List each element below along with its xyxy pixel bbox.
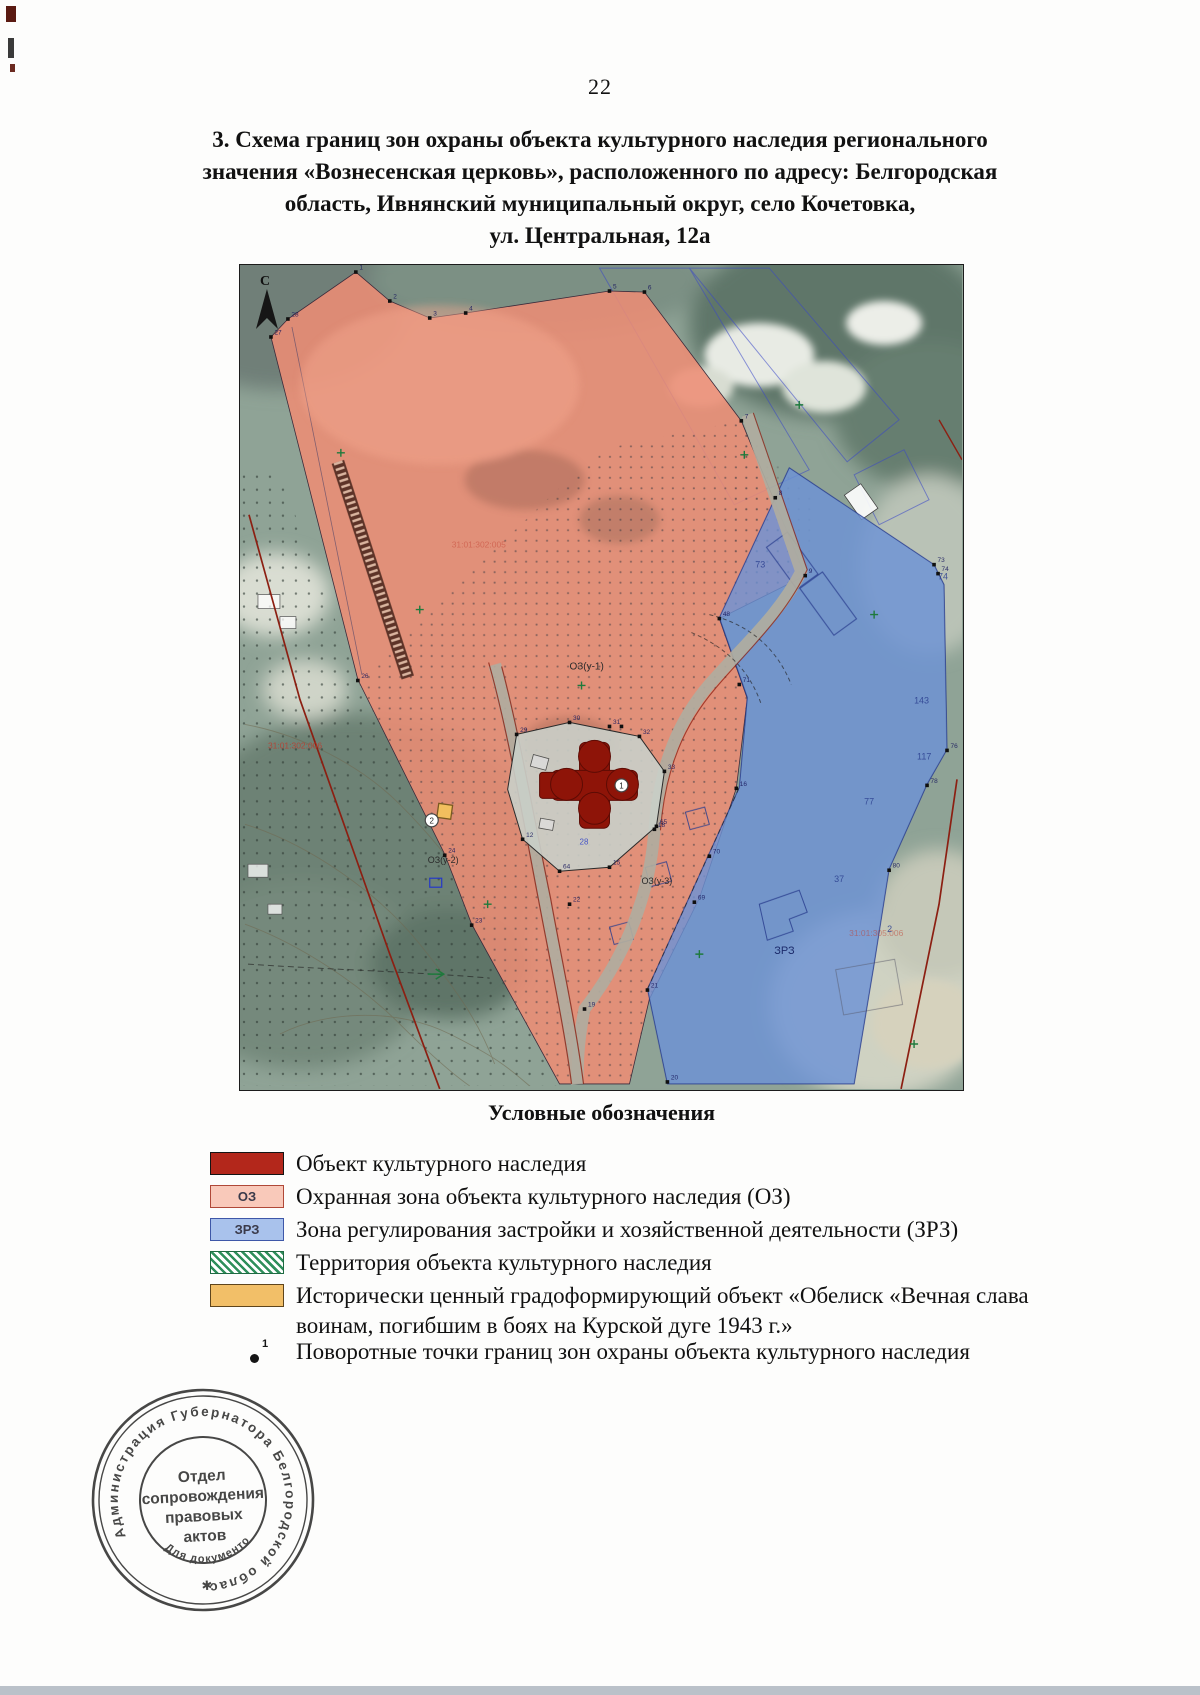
- svg-text:78: 78: [931, 778, 939, 785]
- svg-text:32: 32: [643, 729, 651, 736]
- svg-text:31:01:305:006: 31:01:305:006: [849, 928, 903, 938]
- legend-heading: Условные обозначения: [240, 1100, 963, 1126]
- svg-text:71: 71: [743, 677, 751, 684]
- svg-text:28: 28: [291, 311, 299, 318]
- legend-swatch-territory: [210, 1251, 284, 1274]
- svg-text:18: 18: [658, 822, 666, 829]
- svg-text:15: 15: [613, 860, 621, 867]
- svg-text:37: 37: [834, 874, 844, 884]
- document-page: 22 3. Схема границ зон охраны объекта ку…: [0, 0, 1200, 1695]
- point-number: 1: [262, 1338, 268, 1350]
- legend-label: Исторически ценный градоформирующий объе…: [296, 1281, 1066, 1341]
- legend-swatch-tag: ЗРЗ: [235, 1222, 260, 1237]
- obelisk-marker: [437, 803, 453, 819]
- svg-text:64: 64: [563, 864, 571, 871]
- legend-row-territory: Территория объекта культурного наследия: [210, 1248, 712, 1278]
- svg-text:117: 117: [917, 751, 931, 761]
- legend-swatch-tag: ОЗ: [238, 1189, 256, 1204]
- svg-text:4: 4: [469, 306, 473, 313]
- label-oz1: ОЗ(у-1): [570, 662, 604, 673]
- title-line-1: 3. Схема границ зон охраны объекта культ…: [110, 124, 1090, 156]
- svg-text:1: 1: [359, 265, 363, 272]
- svg-text:74: 74: [942, 566, 950, 573]
- svg-text:31:01:302:005: 31:01:302:005: [452, 540, 506, 550]
- svg-text:16: 16: [740, 781, 748, 788]
- svg-text:77: 77: [864, 796, 874, 806]
- legend-row-heritage: Объект культурного наследия: [210, 1149, 586, 1179]
- stamp-star-icon: ✱: [201, 1578, 213, 1594]
- scan-artifact: [10, 64, 15, 72]
- svg-text:6: 6: [648, 285, 652, 292]
- circled-marker-1: 1: [615, 779, 628, 792]
- scan-edge-bar: [0, 1686, 1200, 1695]
- legend-label: Объект культурного наследия: [296, 1149, 586, 1179]
- svg-text:143: 143: [914, 695, 929, 705]
- stamp-center-line: Отдел: [177, 1467, 226, 1486]
- svg-text:2: 2: [430, 816, 435, 825]
- scan-artifact: [8, 38, 14, 58]
- stamp-center-line: актов: [183, 1527, 227, 1546]
- legend-label: Зона регулирования застройки и хозяйстве…: [296, 1215, 958, 1245]
- circled-marker-2: 2: [425, 814, 438, 827]
- svg-text:21: 21: [651, 983, 659, 990]
- legend-row-obelisk: Исторически ценный градоформирующий объе…: [210, 1281, 1066, 1341]
- svg-text:30: 30: [573, 715, 581, 722]
- label-oz3: ОЗ(у-3): [641, 876, 672, 886]
- svg-text:1: 1: [619, 781, 624, 790]
- scan-artifact: [6, 6, 16, 22]
- protection-zones-map: 1 2 ОЗ(у-1) ОЗ(у-2) ОЗ(у-3) ЗРЗ 28 31:01…: [239, 264, 964, 1091]
- svg-text:19: 19: [588, 1002, 596, 1009]
- svg-text:29: 29: [520, 727, 528, 734]
- svg-text:20: 20: [671, 1074, 679, 1081]
- legend-swatch-zrz: ЗРЗ: [210, 1218, 284, 1241]
- legend-row-zrz: ЗРЗ Зона регулирования застройки и хозяй…: [210, 1215, 958, 1245]
- north-label: С: [260, 274, 270, 289]
- map-svg: 1 2 ОЗ(у-1) ОЗ(у-2) ОЗ(у-3) ЗРЗ 28 31:01…: [240, 265, 962, 1089]
- svg-text:69: 69: [698, 895, 706, 902]
- title-line-4: ул. Центральная, 12а: [110, 220, 1090, 252]
- svg-text:9: 9: [809, 568, 813, 575]
- svg-text:7: 7: [745, 413, 749, 420]
- svg-text:22: 22: [573, 897, 581, 904]
- svg-text:5: 5: [613, 284, 617, 291]
- svg-text:8: 8: [779, 490, 783, 497]
- page-number: 22: [0, 74, 1200, 100]
- svg-text:76: 76: [951, 743, 959, 750]
- svg-text:70: 70: [713, 849, 721, 856]
- svg-text:12: 12: [526, 832, 534, 839]
- svg-text:48: 48: [723, 611, 731, 618]
- document-title: 3. Схема границ зон охраны объекта культ…: [110, 124, 1090, 252]
- legend-label: Территория объекта культурного наследия: [296, 1248, 712, 1278]
- svg-text:27: 27: [274, 329, 282, 336]
- legend-swatch-obelisk: [210, 1284, 284, 1307]
- legend-swatch-heritage: [210, 1152, 284, 1175]
- svg-text:31:01:302:006: 31:01:302:006: [268, 740, 322, 750]
- svg-text:31: 31: [613, 719, 621, 726]
- stamp-center-line: правовых: [165, 1506, 244, 1527]
- title-line-3: область, Ивнянский муниципальный округ, …: [110, 188, 1090, 220]
- legend-row-points: 1 Поворотные точки границ зон охраны объ…: [210, 1337, 970, 1370]
- stamp-center-line: сопровождения: [141, 1485, 264, 1508]
- legend-label: Охранная зона объекта культурного наслед…: [296, 1182, 791, 1212]
- title-line-2: значения «Вознесенская церковь», располо…: [110, 156, 1090, 188]
- svg-text:23: 23: [475, 918, 483, 925]
- legend-label: Поворотные точки границ зон охраны объек…: [296, 1337, 970, 1367]
- label-zrz: ЗРЗ: [774, 945, 795, 957]
- svg-text:73: 73: [755, 560, 765, 570]
- label-28: 28: [580, 837, 589, 846]
- svg-text:3: 3: [433, 311, 437, 318]
- svg-text:33: 33: [668, 764, 676, 771]
- svg-text:26: 26: [361, 673, 369, 680]
- svg-text:24: 24: [448, 848, 456, 855]
- svg-text:2: 2: [887, 924, 892, 934]
- svg-text:73: 73: [938, 557, 946, 564]
- legend-symbol-point: 1: [210, 1340, 284, 1370]
- point-dot-icon: [250, 1354, 259, 1363]
- legend-row-oz: ОЗ Охранная зона объекта культурного нас…: [210, 1182, 791, 1212]
- svg-text:80: 80: [893, 863, 901, 870]
- svg-text:2: 2: [393, 294, 397, 301]
- official-stamp: Администрация Губернатора Белгородской о…: [85, 1382, 321, 1618]
- legend-swatch-oz: ОЗ: [210, 1185, 284, 1208]
